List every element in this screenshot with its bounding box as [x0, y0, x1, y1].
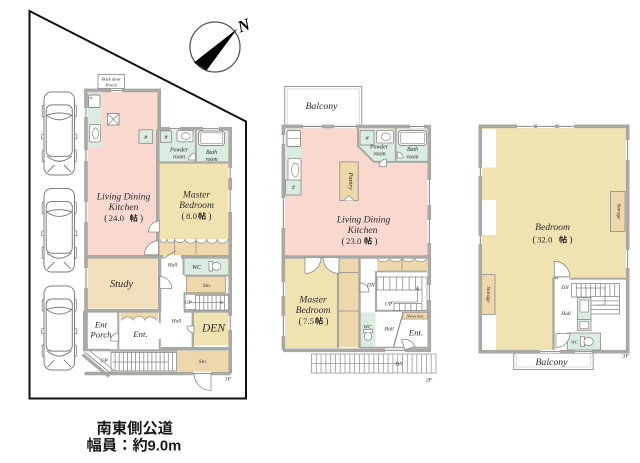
svg-text:(: (: [299, 316, 302, 327]
svg-text:Bath: Bath: [407, 147, 418, 153]
svg-text:room: room: [205, 157, 217, 163]
svg-text:2F: 2F: [426, 378, 433, 384]
svg-text:room: room: [373, 152, 385, 158]
svg-text:DN: DN: [394, 362, 403, 368]
svg-text:Balcony: Balcony: [305, 101, 338, 112]
svg-text:Pantry: Pantry: [347, 171, 354, 190]
svg-text:Sto.: Sto.: [199, 359, 207, 365]
svg-text:Balcony: Balcony: [535, 357, 568, 368]
svg-text:UP: UP: [385, 302, 393, 308]
svg-text:3F: 3F: [621, 354, 629, 360]
svg-text:32.0: 32.0: [537, 235, 553, 245]
svg-text:): ): [140, 213, 143, 224]
svg-text:Living Dining: Living Dining: [96, 192, 151, 203]
svg-text:Hall: Hall: [171, 319, 182, 325]
svg-text:room: room: [173, 155, 185, 161]
svg-text:): ): [325, 316, 328, 327]
svg-text:Living Dining: Living Dining: [336, 215, 391, 226]
svg-text:Porch: Porch: [89, 330, 112, 340]
svg-text:WC: WC: [363, 325, 371, 331]
svg-text:Storage: Storage: [616, 203, 622, 220]
svg-text:23.0: 23.0: [346, 236, 362, 246]
svg-text:room: room: [406, 155, 418, 161]
svg-text:Kitchen: Kitchen: [347, 225, 378, 236]
svg-text:7.5: 7.5: [303, 316, 315, 326]
svg-text:(: (: [342, 236, 345, 247]
svg-text:): ): [569, 235, 572, 246]
svg-text:Bedroom: Bedroom: [535, 222, 570, 233]
svg-text:Kitchen: Kitchen: [108, 202, 139, 213]
svg-text:9.0m: 9.0m: [148, 439, 182, 455]
svg-text:Porch: Porch: [105, 83, 118, 88]
svg-text:Ent: Ent: [94, 320, 108, 330]
svg-text:Storage: Storage: [485, 286, 491, 303]
svg-text:(: (: [104, 213, 107, 224]
svg-text:UP: UP: [184, 300, 192, 306]
svg-text:WC: WC: [192, 265, 201, 271]
svg-text:Study: Study: [110, 279, 133, 290]
svg-text:Ent.: Ent.: [132, 329, 147, 339]
svg-text:DN: DN: [560, 285, 569, 291]
svg-text:): ): [374, 236, 377, 247]
svg-text:Bath: Bath: [206, 150, 217, 156]
svg-text:Bedroom: Bedroom: [296, 305, 331, 316]
svg-text:UP: UP: [100, 358, 108, 364]
svg-text:Hall: Hall: [167, 263, 178, 269]
svg-text:(: (: [182, 211, 185, 222]
svg-text:Bedroom: Bedroom: [179, 200, 214, 211]
svg-text:Shoes box: Shoes box: [407, 314, 424, 319]
svg-text:Hall: Hall: [383, 327, 394, 333]
svg-text:DEN: DEN: [201, 323, 226, 335]
svg-text:Hall: Hall: [560, 311, 571, 317]
svg-text:1F: 1F: [225, 377, 232, 383]
svg-text:Master: Master: [298, 295, 326, 306]
svg-text:Powder: Powder: [169, 148, 189, 154]
svg-text:8.0: 8.0: [186, 211, 198, 221]
svg-text:Ent.: Ent.: [408, 328, 423, 338]
svg-text:Sto.: Sto.: [203, 283, 211, 289]
svg-text:24.0: 24.0: [109, 213, 125, 223]
svg-text:Powder: Powder: [369, 145, 389, 151]
svg-text:(: (: [533, 235, 536, 246]
svg-text:Master: Master: [182, 190, 210, 201]
svg-text:): ): [208, 211, 211, 222]
svg-text:WC: WC: [571, 340, 579, 345]
svg-text:Back door: Back door: [102, 77, 121, 82]
